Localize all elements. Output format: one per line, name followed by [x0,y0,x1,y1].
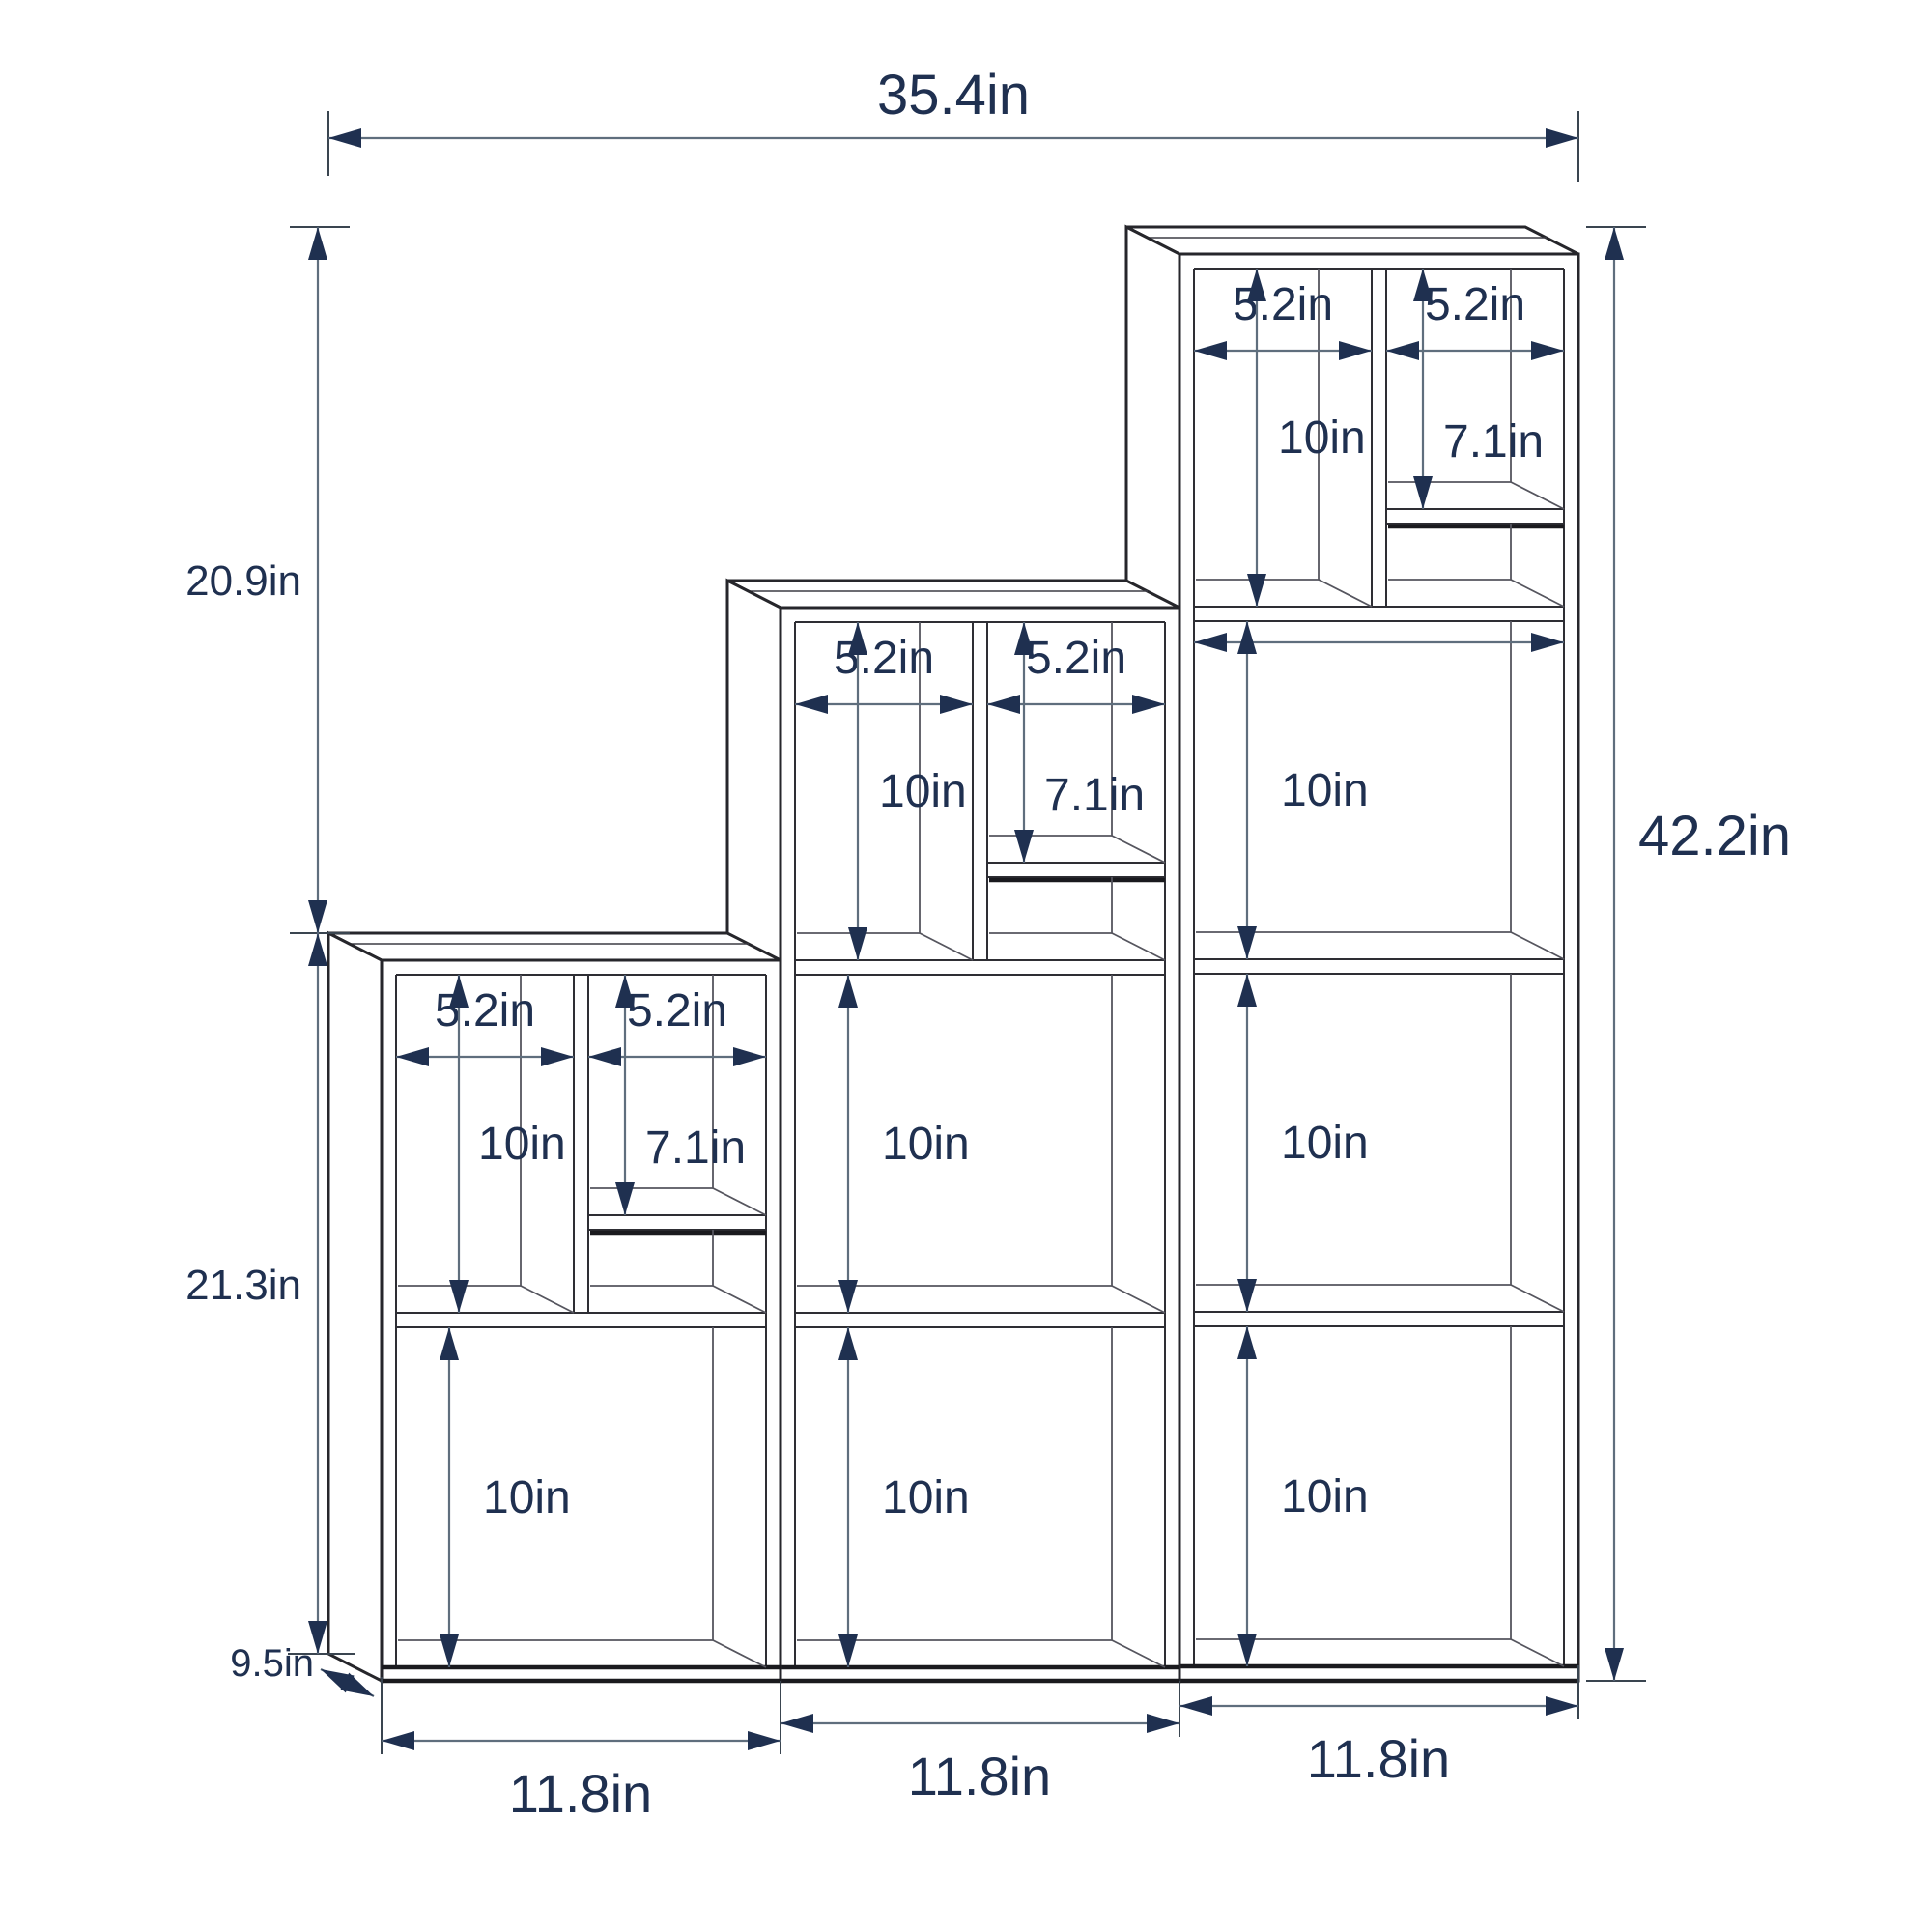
left-upper-offset-label: 20.9in [185,557,301,605]
bookshelf-dimension-diagram: 35.4in 20.9in 21.3in 42.2in 9.5in 11.8in… [0,0,1932,1932]
right-unit-row1-height-label: 10in [1281,765,1369,816]
left-unit-width-label: 11.8in [509,1763,652,1824]
right-unit-row2-height-label: 10in [1281,1118,1369,1169]
left-unit-small-left-width-label: 5.2in [435,985,535,1037]
middle-unit-small-left-width-label: 5.2in [834,633,934,684]
middle-unit-row1-height-label: 10in [882,1119,970,1170]
right-unit-small-left-height-label: 10in [1278,412,1366,464]
middle-unit-width-label: 11.8in [908,1746,1051,1806]
left-unit-small-left-height-label: 10in [478,1119,566,1170]
overall-width-label: 35.4in [877,64,1030,127]
right-unit-width-label: 11.8in [1307,1728,1450,1789]
left-unit-side-face [328,933,382,1681]
dim-left-upper-offset: 20.9in [185,227,350,933]
dim-middle-unit-width: 11.8in [781,1681,1179,1806]
left-unit [328,933,781,1681]
dim-left-unit-width: 11.8in [382,1677,781,1824]
diagram-canvas: 35.4in 20.9in 21.3in 42.2in 9.5in 11.8in… [0,0,1932,1932]
right-unit-row3-height-label: 10in [1281,1471,1369,1522]
right-unit-small-right-height-label: 7.1in [1443,416,1544,468]
middle-unit-small-right-width-label: 5.2in [1026,633,1126,684]
left-unit-small-right-height-label: 7.1in [645,1122,746,1174]
left-column-height-label: 21.3in [185,1262,301,1309]
middle-unit-small-left-height-label: 10in [879,766,967,817]
right-unit-top-face [1126,227,1578,254]
dim-overall-height: 42.2in [1586,227,1791,1681]
middle-unit-front [781,608,1179,1681]
right-unit-front [1179,254,1578,1681]
middle-unit-row2-height-label: 10in [882,1472,970,1523]
middle-unit-top-face [727,581,1179,608]
right-unit-small-left-width-label: 5.2in [1233,279,1333,330]
dim-overall-width: 35.4in [328,64,1578,182]
left-unit-row1-height-label: 10in [483,1472,571,1523]
left-unit-front [382,960,781,1681]
depth-label: 9.5in [230,1642,314,1685]
left-unit-small-right-width-label: 5.2in [627,985,727,1037]
overall-height-label: 42.2in [1638,805,1791,867]
left-unit-top-face [328,933,781,960]
right-unit-small-right-width-label: 5.2in [1425,279,1525,330]
dim-right-unit-width: 11.8in [1179,1665,1578,1789]
middle-unit-small-right-height-label: 7.1in [1044,770,1145,821]
